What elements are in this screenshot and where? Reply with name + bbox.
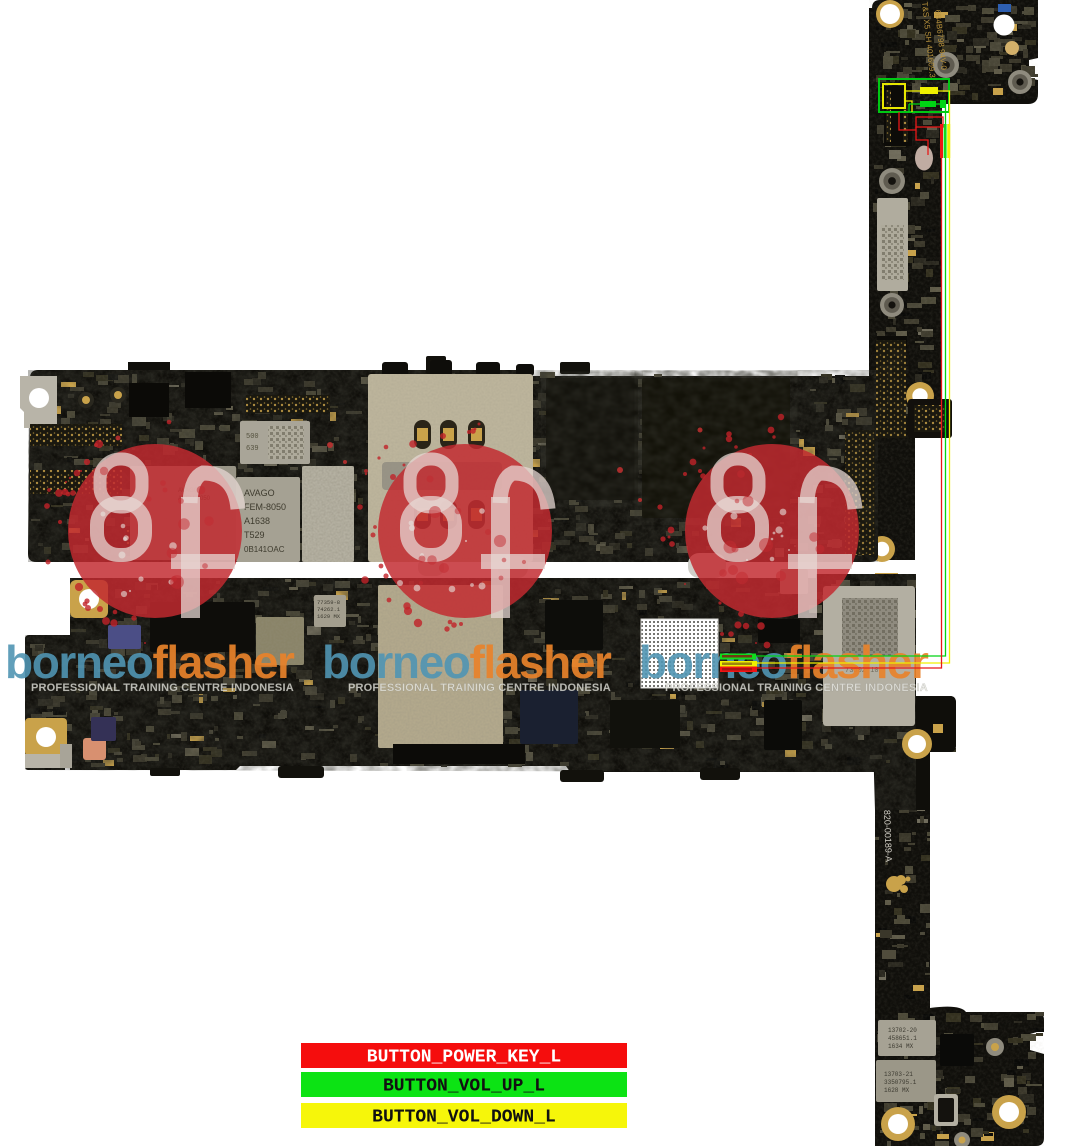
svg-text:borneoflasher: borneoflasher [639, 636, 929, 688]
svg-text:639: 639 [246, 445, 259, 453]
svg-text:BUTTON_VOL_DOWN_L: BUTTON_VOL_DOWN_L [372, 1108, 556, 1128]
svg-text:borneoflasher: borneoflasher [322, 636, 612, 688]
svg-text:borneoflasher: borneoflasher [5, 636, 295, 688]
svg-text:1629 MX: 1629 MX [317, 613, 341, 620]
svg-text:3350795.1: 3350795.1 [884, 1079, 917, 1086]
svg-text:T529: T529 [244, 530, 265, 540]
svg-text:13702-20: 13702-20 [888, 1027, 917, 1034]
svg-text:820-00189-A: 820-00189-A [882, 810, 894, 862]
svg-text:74262.1: 74262.1 [317, 606, 341, 613]
svg-text:A1638: A1638 [244, 516, 270, 526]
svg-text:77359-8: 77359-8 [317, 599, 340, 606]
svg-text:AVAGO: AVAGO [244, 488, 275, 498]
svg-text:PROFESSIONAL TRAINING CENTRE I: PROFESSIONAL TRAINING CENTRE INDONESIA [31, 682, 294, 694]
svg-text:1634 MX: 1634 MX [888, 1043, 914, 1050]
svg-text:BUTTON_VOL_UP_L: BUTTON_VOL_UP_L [383, 1077, 545, 1097]
svg-text:PROFESSIONAL TRAINING CENTRE I: PROFESSIONAL TRAINING CENTRE INDONESIA [348, 682, 611, 694]
svg-text:13703-21: 13703-21 [884, 1071, 913, 1078]
svg-text:FEM-8050: FEM-8050 [244, 502, 286, 512]
svg-text:BUTTON_POWER_KEY_L: BUTTON_POWER_KEY_L [367, 1048, 561, 1068]
svg-text:PROFESSIONAL TRAINING CENTRE I: PROFESSIONAL TRAINING CENTRE INDONESIA [665, 682, 928, 694]
svg-text:1628 MX: 1628 MX [884, 1087, 910, 1094]
svg-text:0B141OAC: 0B141OAC [244, 545, 285, 554]
svg-text:458651.1: 458651.1 [888, 1035, 917, 1042]
svg-text:500: 500 [246, 433, 259, 441]
